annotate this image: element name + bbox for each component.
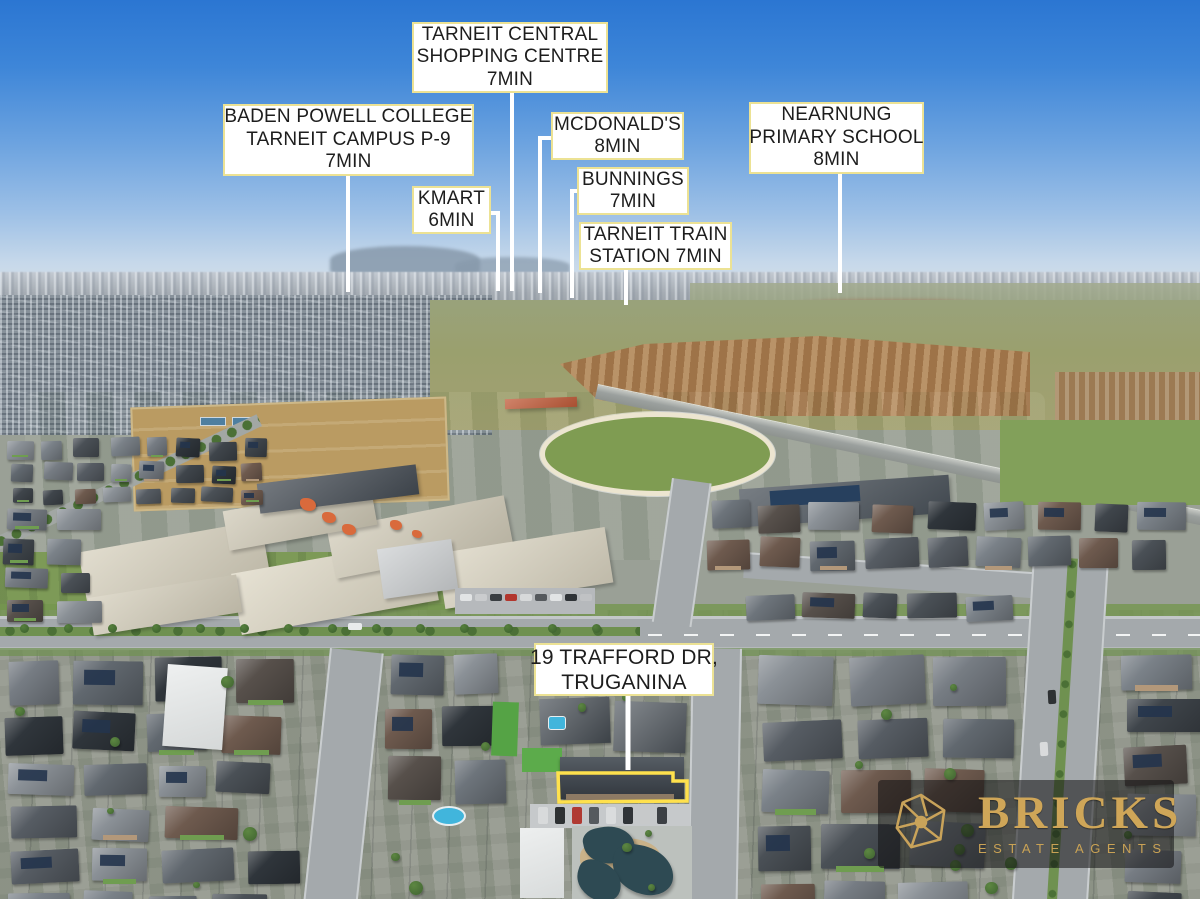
orange-shade-sail [390,520,402,530]
yard [217,479,231,481]
solar-panel [12,604,28,612]
house-roof [1079,538,1118,568]
solar-panel [143,464,155,471]
house-roof [1038,502,1081,530]
house-roof [761,884,815,899]
tree [864,848,875,859]
house-roof [824,881,886,899]
yard [836,866,884,871]
yard [180,835,224,840]
aerial-photo: TARNEIT CENTRALSHOPPING CENTRE7MINBADEN … [0,0,1200,899]
parked-car [606,807,616,824]
parked-car [550,594,562,601]
orange-shade-sail [342,524,356,535]
house-roof [1127,699,1200,732]
house-roof [454,760,505,805]
solar-panel [973,601,995,611]
house-roof [391,655,445,696]
artificial-turf [491,702,519,757]
house-roof [148,895,197,899]
tree [193,882,200,889]
solar-panel [100,855,125,867]
house-roof [73,438,99,457]
tree [152,624,161,633]
solar-panel [13,512,31,520]
tree [240,624,249,633]
tree [460,624,469,633]
house-roof [761,769,829,815]
house-roof [757,504,800,533]
yard [159,750,194,755]
tree [648,884,655,891]
house-roof [215,760,270,794]
tree [391,853,399,861]
house-roof [758,826,812,872]
house-roof [248,850,300,884]
parked-car [538,807,548,824]
house-roof [388,756,442,801]
tree [15,707,24,716]
car [1048,690,1057,704]
parked-car [589,807,599,824]
swimming-pool [432,806,466,826]
yard [12,455,28,457]
parked-car [535,594,547,601]
house-roof [147,436,168,455]
tree [944,768,956,780]
house-roof [966,595,1014,623]
solar-panel [166,773,187,784]
house-roof [7,441,34,460]
house-roof [57,601,103,623]
house-roof [136,488,162,504]
house-roof [139,461,165,480]
house-roof [236,659,295,703]
callout-text-line: 8MIN [813,149,859,172]
house-roof [159,766,206,797]
solar-panel [248,441,258,448]
bricks-logo-icon [890,791,952,858]
callout-baden-powell-college: BADEN POWELL COLLEGETARNEIT CAMPUS P-97M… [223,104,474,176]
house-roof [872,505,914,534]
house-roof [212,465,236,484]
childcare-roof [520,828,564,898]
tree [578,703,587,712]
house-roof [77,463,104,481]
tree [416,624,425,633]
callout-text-line: TARNEIT CAMPUS P-9 [246,129,451,152]
house-roof [762,720,843,762]
solar-panel [8,544,22,553]
parked-car [520,594,532,601]
house-roof [72,711,136,752]
callout-text-line: NEARNUNG [781,104,891,127]
house-roof [802,592,856,619]
tree [622,843,632,853]
house-roof [453,653,498,695]
tree [592,624,601,633]
callout-text-line: STATION 7MIN [589,246,722,269]
yard [1135,685,1178,690]
house-roof [848,654,925,706]
house-roof [74,488,96,504]
orange-shade-sail [412,530,422,538]
house-roof [613,701,687,753]
house-roof [110,436,140,456]
yard [246,500,259,502]
house-roof [1132,539,1166,570]
callout-mcdonalds: MCDONALD'S8MIN [551,112,684,160]
yard [14,618,36,621]
callout-tarneit-train-station: TARNEIT TRAINSTATION 7MIN [579,222,732,270]
tree [409,881,423,895]
house-roof [73,660,144,705]
callout-text-line: KMART [418,188,485,211]
house-roof [91,848,147,882]
solar-panel [1139,706,1173,718]
house-roof [171,487,195,503]
artificial-turf [522,748,562,772]
parked-car [460,594,472,601]
yard [246,479,259,481]
callout-text-line: 7MIN [487,69,533,92]
yard [10,560,29,563]
house-roof [927,536,968,568]
yard [151,455,163,457]
house-roof [7,892,69,899]
solar-panel [20,857,51,870]
swimming-pool [548,716,566,730]
house-roof [40,441,62,460]
house-roof [245,438,267,457]
grass-field [1000,420,1200,505]
house-roof [201,487,234,504]
tree [107,808,114,815]
orange-shade-sail [322,512,336,523]
house-roof [758,655,834,706]
house-roof [176,438,201,458]
solar-panel [1132,754,1161,769]
house-roof [928,501,977,531]
parked-car [640,807,650,824]
house-roof [4,716,63,756]
solar-panel [766,835,790,851]
house-roof [43,490,64,506]
house-roof [11,464,33,483]
house-roof [10,849,79,886]
warehouse-roof [162,664,228,750]
house-roof [712,499,751,528]
solar-panel [399,663,423,678]
yard [248,700,283,705]
solar-panel [1045,508,1064,518]
house-roof [47,538,81,564]
solar-panel [392,717,413,731]
solar-panel [1144,507,1166,517]
house-roof [907,593,957,619]
house-roof [1028,536,1071,567]
yard [715,566,741,570]
parked-car [475,594,487,601]
house-roof [221,715,281,755]
subject-property-wall [566,794,674,800]
callout-text-line: MCDONALD'S [554,114,681,137]
callout-text-line: 19 TRAFFORD DR, [530,645,718,670]
callout-text-line: 6MIN [428,210,474,233]
house-roof [442,705,495,746]
parked-car [490,594,502,601]
subject-property-roof [560,757,684,799]
yard [17,500,29,502]
house-roof [745,594,795,621]
tree [855,761,863,769]
solar-panel [17,770,47,782]
parked-car [580,594,592,601]
parked-car [572,807,582,824]
solar-panel [11,572,31,580]
callout-text-line: BUNNINGS [582,169,684,192]
house-roof [208,441,237,460]
yard [234,750,269,755]
callout-text-line: PRIMARY SCHOOL [749,127,923,150]
orange-shade-sail [300,498,316,511]
house-roof [57,509,101,530]
house-roof [898,881,969,899]
yard [115,479,127,481]
tree [504,624,513,633]
solar-panel [82,719,111,733]
tree [328,624,337,633]
house-roof [942,719,1014,759]
house-roof [975,536,1021,568]
house-roof [863,593,899,620]
solar-panel [84,669,116,685]
tennis-court [200,417,226,426]
yard [820,566,847,570]
house-roof [1127,891,1183,899]
house-roof [241,490,263,505]
parked-car [555,807,565,824]
callout-text-line: 7MIN [325,151,371,174]
callout-text-line: TARNEIT TRAIN [583,224,727,247]
house-roof [176,465,204,484]
yard [103,835,137,840]
house-roof [8,660,59,706]
callout-text-line: TARNEIT CENTRAL [422,24,599,47]
callout-tarneit-central-shopping-centre: TARNEIT CENTRALSHOPPING CENTRE7MIN [412,22,608,93]
tree [64,624,73,633]
tree [372,624,381,633]
tree [985,882,997,894]
callout-property-address: 19 TRAFFORD DR,TRUGANINA [534,643,714,696]
house-roof [43,461,72,480]
car [1040,742,1049,756]
callout-text-line: TRUGANINA [561,670,686,695]
logo-wordmark: BRICKS [978,792,1182,834]
parked-car [657,807,667,824]
house-roof [61,573,90,593]
callout-bunnings: BUNNINGS7MIN [577,167,689,215]
yard [103,879,136,884]
sports-oval [540,412,775,496]
house-roof [933,657,1006,706]
tree [20,624,29,633]
house-roof [83,890,133,899]
solar-panel [180,442,191,449]
yard [399,800,431,805]
school-carpark [455,588,595,614]
parked-car [623,807,633,824]
house-roof [7,763,74,796]
house-roof [10,806,77,839]
house-roof [1137,501,1186,529]
house-roof [858,717,929,758]
tree [950,684,957,691]
house-roof [760,536,801,568]
house-roof [5,568,49,589]
callout-text-line: BADEN POWELL COLLEGE [224,106,472,129]
parked-car [505,594,517,601]
callout-nearnung-primary-school: NEARNUNGPRIMARY SCHOOL8MIN [749,102,924,174]
tree [108,624,117,633]
yard [775,809,815,814]
solar-panel [810,597,834,607]
logo-tagline: ESTATE AGENTS [978,841,1167,856]
callout-text-line: 7MIN [610,191,656,214]
tree [196,624,205,633]
tree [284,624,293,633]
tree [243,827,257,841]
solar-panel [990,507,1009,517]
callout-kmart: KMART6MIN [412,186,491,234]
car [348,623,362,630]
tree [548,624,557,633]
house-roof [865,537,920,570]
house-roof [808,502,859,530]
yard [985,566,1012,570]
solar-panel [817,547,838,558]
yard [15,526,39,529]
house-roof [1094,504,1128,533]
house-roof [161,848,234,885]
school-building-roof [377,539,458,599]
house-roof [103,487,132,503]
callout-text-line: SHOPPING CENTRE [417,46,604,69]
house-roof [83,763,147,796]
parked-car [565,594,577,601]
solar-panel [216,469,227,476]
solar-panel [244,493,254,498]
yard [144,479,159,481]
construction-site [1055,372,1200,424]
callout-text-line: 8MIN [594,136,640,159]
house-roof [385,709,432,750]
bricks-estate-agents-logo: BRICKS ESTATE AGENTS [878,780,1174,868]
house-roof [212,894,268,899]
house-roof [983,501,1025,530]
